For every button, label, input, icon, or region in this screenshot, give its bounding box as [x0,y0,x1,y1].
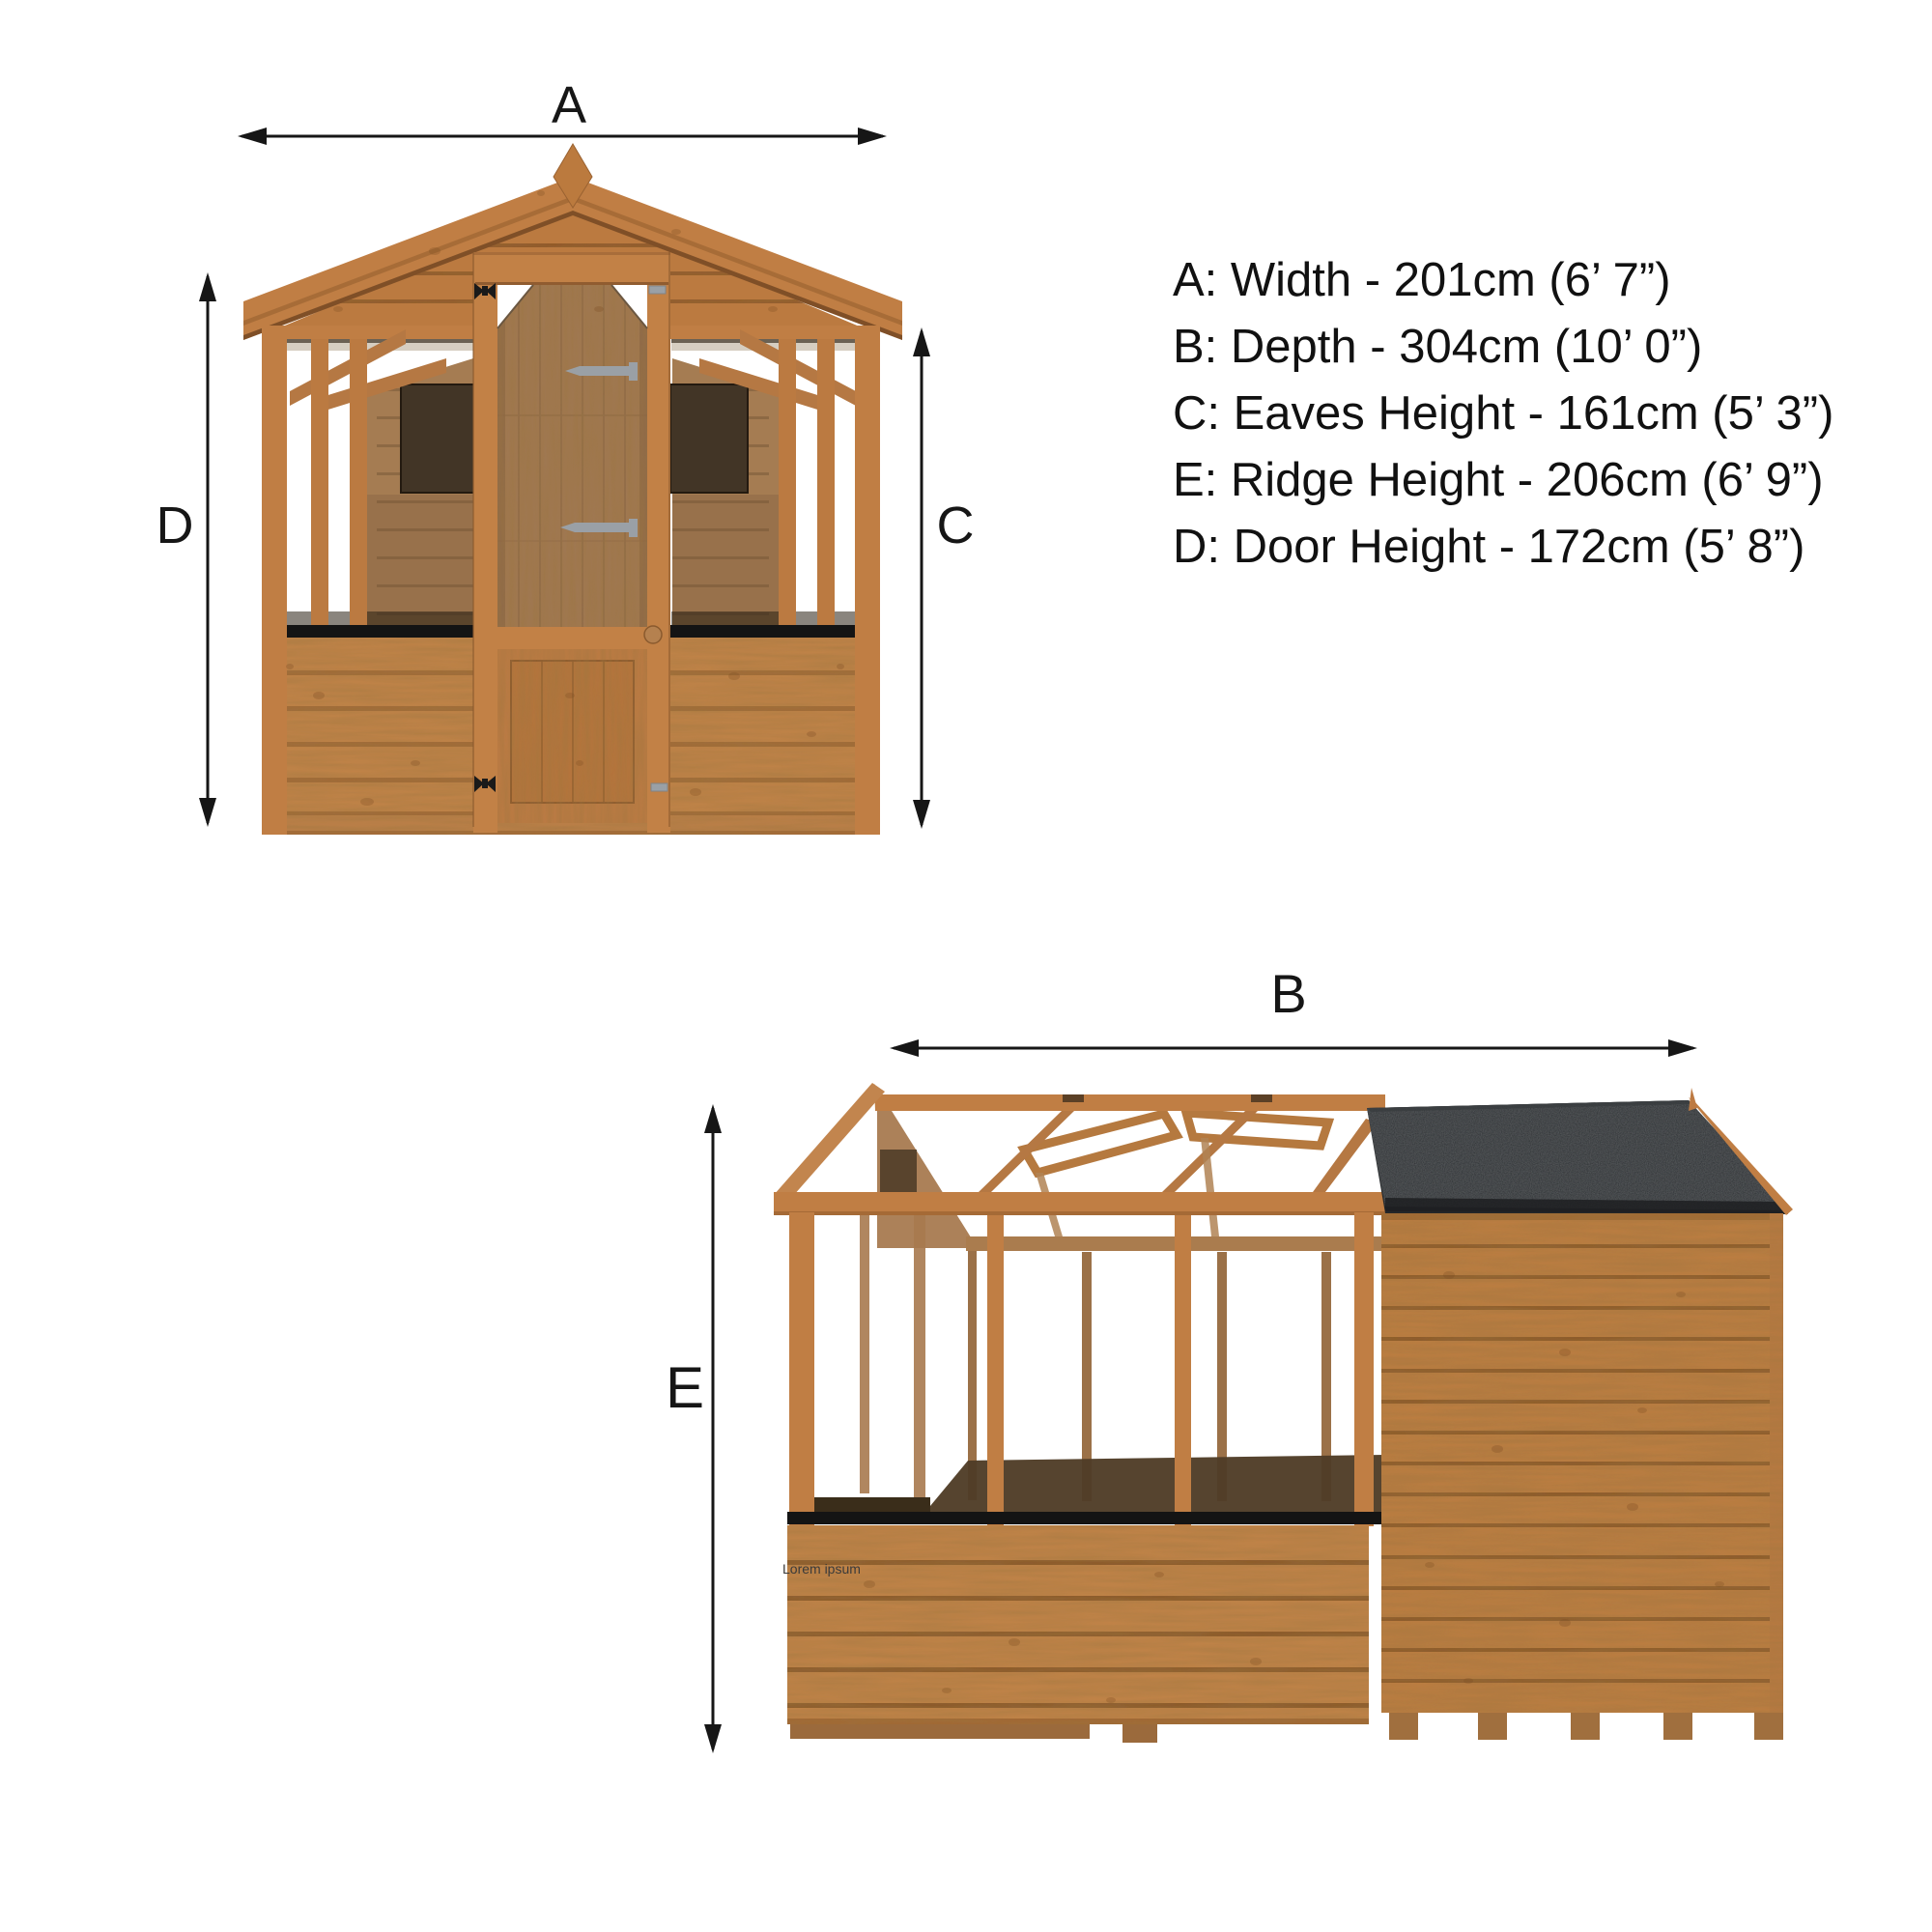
svg-text:C: C [937,497,975,554]
svg-text:A: Width - 201cm (6’ 7”): A: Width - 201cm (6’ 7”) [1173,254,1671,306]
svg-text:D: Door Height - 172cm (5’ 8”): D: Door Height - 172cm (5’ 8”) [1173,521,1804,573]
svg-text:Lorem ipsum: Lorem ipsum [782,1561,861,1577]
svg-text:C: Eaves Height - 161cm (5’ 3”: C: Eaves Height - 161cm (5’ 3”) [1173,387,1833,440]
svg-text:E: Ridge Height - 206cm (6’ 9”: E: Ridge Height - 206cm (6’ 9”) [1173,454,1824,506]
svg-text:B: B [1270,963,1306,1024]
svg-text:B: Depth - 304cm (10’ 0”): B: Depth - 304cm (10’ 0”) [1173,321,1702,373]
svg-text:A: A [552,76,586,134]
svg-text:E: E [666,1355,704,1420]
svg-text:D: D [156,497,194,554]
